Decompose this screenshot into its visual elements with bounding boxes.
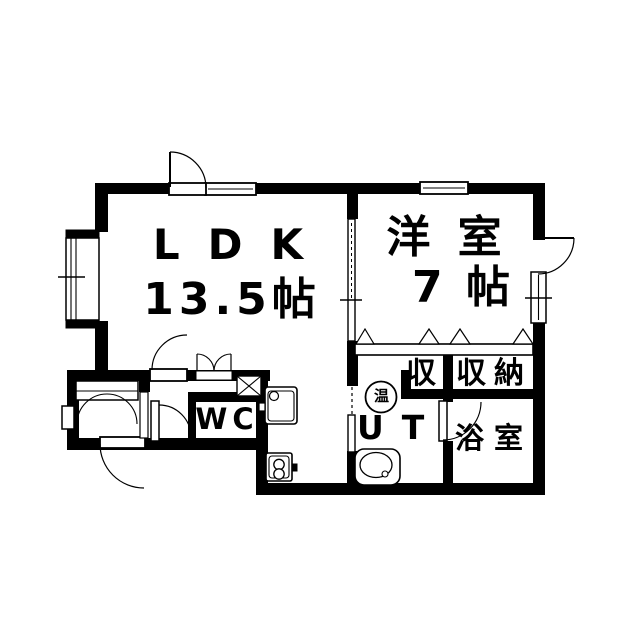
closet-label: 収 — [397, 359, 445, 389]
window-entry-left — [62, 406, 74, 429]
folding-mark — [419, 329, 439, 344]
wc-label: WC — [193, 405, 261, 434]
double-door-shoe-cabinet — [76, 381, 138, 424]
door-hallway — [151, 401, 191, 441]
ldk-size-label: 13.5帖 — [132, 278, 332, 322]
wall-entry-bottom — [67, 438, 268, 450]
water-heater-label: 温 — [366, 389, 397, 404]
folding-mark — [513, 329, 533, 344]
burner — [274, 459, 284, 469]
window-ldk-left-bay — [58, 230, 99, 328]
folding-door-marks — [356, 329, 533, 344]
entry-step-frame — [140, 392, 148, 438]
window-top-western — [420, 182, 468, 194]
closet-front-track — [355, 344, 533, 355]
western-size-label: 7 帖 — [407, 266, 519, 310]
door-ldk-top-exterior — [169, 152, 206, 195]
kitchen-stove — [266, 453, 297, 481]
wash-basin — [355, 449, 400, 485]
drain — [382, 471, 388, 477]
bathroom-label: 浴室 — [450, 424, 538, 453]
wall-top — [95, 183, 545, 194]
wall-stub-hall — [139, 370, 150, 392]
western-room-label: 洋 室 — [377, 216, 517, 260]
ldk-room-label: LDK — [140, 224, 344, 266]
closet-fronts — [355, 329, 533, 355]
door-ldk-hallway — [150, 335, 187, 381]
floorplan-canvas: LDK 13.5帖 洋 室 7 帖 WC UT 浴室 収 収納 温 — [0, 0, 640, 640]
utility-label: UT — [357, 411, 439, 444]
crossed-box — [237, 376, 261, 396]
wall-bottom-main — [256, 483, 545, 495]
opening-western-right-door — [531, 240, 547, 273]
door-entrance — [100, 437, 145, 488]
wall-bath-left-a — [443, 389, 453, 402]
faucet — [270, 392, 279, 401]
double-door-ldk-closet — [196, 354, 232, 380]
storage-label: 収納 — [452, 359, 536, 389]
window-western-right — [525, 272, 552, 323]
folding-mark — [450, 329, 470, 344]
sliding-door-ut — [348, 387, 355, 452]
kitchen-sink — [259, 387, 297, 424]
burner — [274, 469, 284, 479]
wall-partition-top — [347, 183, 358, 219]
folding-mark — [356, 329, 374, 344]
window-top-ldk — [205, 183, 256, 195]
